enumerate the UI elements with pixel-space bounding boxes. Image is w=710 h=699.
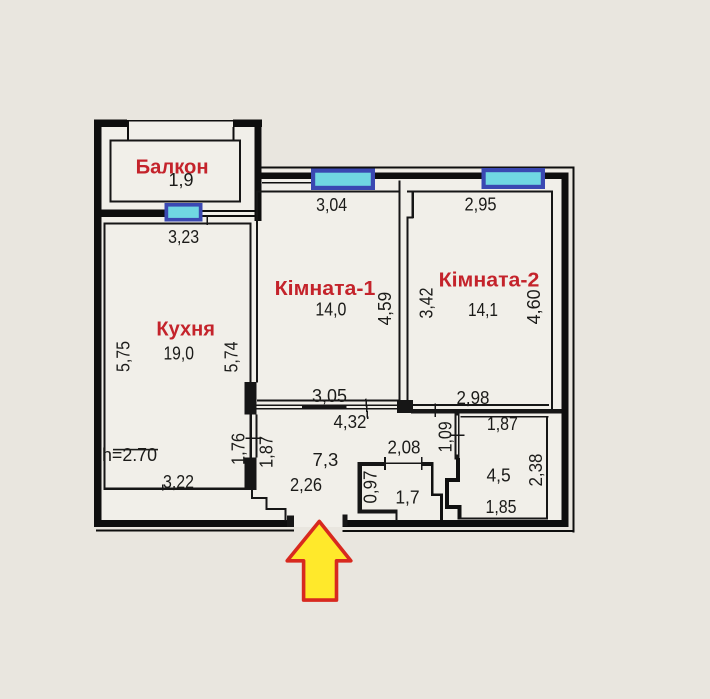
- svg-text:4,60: 4,60: [524, 289, 544, 324]
- svg-text:Кухня: Кухня: [156, 319, 215, 341]
- svg-text:Кімната-2: Кімната-2: [439, 270, 540, 292]
- svg-text:3,22: 3,22: [163, 472, 194, 492]
- svg-text:14,0: 14,0: [315, 299, 346, 319]
- svg-text:2,26: 2,26: [290, 475, 322, 495]
- svg-text:14,1: 14,1: [468, 300, 498, 320]
- svg-text:4,59: 4,59: [375, 292, 395, 326]
- svg-text:1,87: 1,87: [487, 414, 518, 434]
- svg-text:2,98: 2,98: [457, 388, 490, 408]
- svg-text:19,0: 19,0: [163, 344, 194, 364]
- svg-text:Кімната-1: Кімната-1: [275, 278, 376, 300]
- svg-text:2,38: 2,38: [526, 454, 546, 487]
- svg-text:1,85: 1,85: [486, 497, 517, 517]
- svg-text:2,95: 2,95: [465, 195, 497, 215]
- svg-text:4,5: 4,5: [486, 466, 510, 486]
- svg-text:4,32: 4,32: [334, 412, 367, 432]
- svg-text:h=2.70: h=2.70: [102, 445, 157, 465]
- svg-text:3,42: 3,42: [416, 288, 436, 319]
- svg-text:1,09: 1,09: [435, 421, 455, 452]
- svg-text:1,87: 1,87: [257, 436, 277, 468]
- svg-text:1,76: 1,76: [229, 433, 249, 465]
- svg-text:1,9: 1,9: [168, 170, 193, 190]
- svg-text:5,74: 5,74: [221, 342, 241, 373]
- svg-text:3,04: 3,04: [316, 195, 347, 215]
- svg-text:1,7: 1,7: [395, 488, 419, 508]
- svg-text:0,97: 0,97: [361, 471, 381, 504]
- svg-text:5,75: 5,75: [114, 341, 134, 372]
- svg-text:3,05: 3,05: [312, 386, 347, 406]
- svg-text:7,3: 7,3: [313, 450, 339, 470]
- svg-text:3,23: 3,23: [168, 227, 199, 247]
- svg-text:2,08: 2,08: [388, 438, 421, 458]
